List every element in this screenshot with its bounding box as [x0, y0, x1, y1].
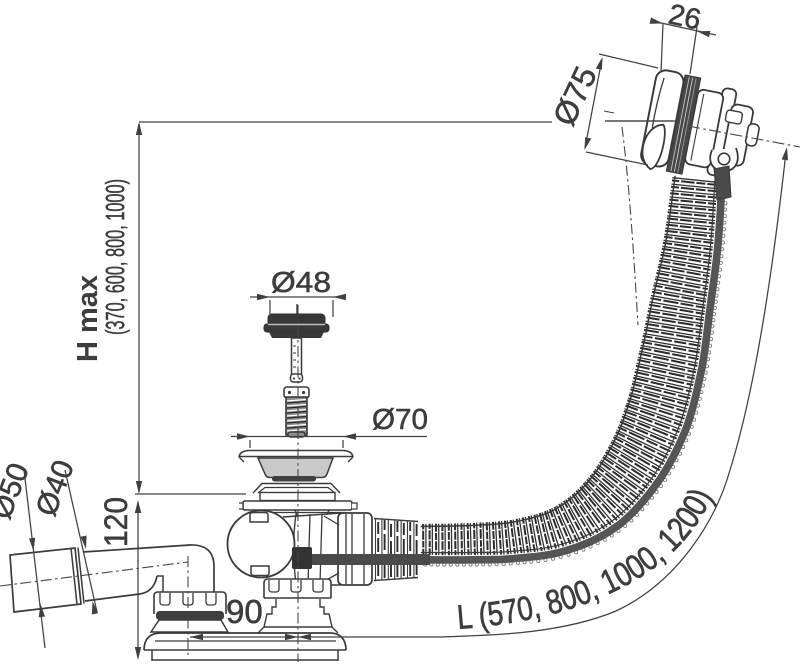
svg-text:26: 26 [666, 0, 704, 37]
svg-text:90: 90 [226, 593, 263, 630]
svg-text:Ø48: Ø48 [271, 267, 331, 299]
svg-text:(370, 600, 800, 1000): (370, 600, 800, 1000) [100, 179, 130, 335]
svg-text:120: 120 [98, 497, 134, 547]
svg-text:Ø40: Ø40 [30, 456, 81, 521]
svg-text:Ø50: Ø50 [0, 459, 36, 524]
svg-text:Ø70: Ø70 [372, 404, 428, 436]
